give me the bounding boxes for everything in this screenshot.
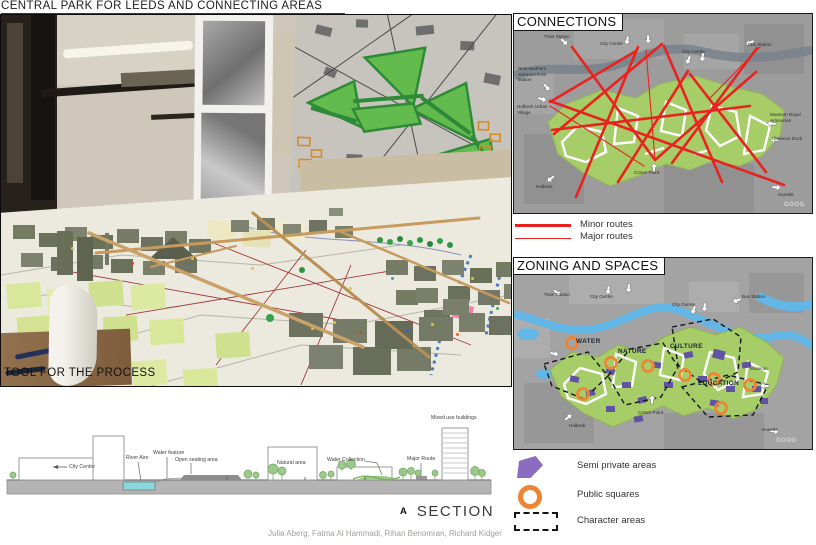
sec-label-city-centre: City Centre (69, 464, 95, 470)
zone-label-culture: CULTURE (670, 343, 703, 350)
zone-label-water: WATER (576, 338, 601, 345)
zone-label-nature: NATURE (618, 348, 647, 355)
zon-label-city-centre-1: City Centre (590, 294, 613, 300)
character-areas-label: Character areas (577, 515, 645, 526)
conn-label-city-centre-2: City Centre (682, 49, 705, 55)
public-squares-swatch (518, 485, 542, 509)
conn-label-museum-royal-armouries: Museum Royal Armouries (770, 112, 810, 123)
sec-label-natural-area: Natural area (277, 460, 306, 466)
conn-label-clarence-dock: Clarence Dock (772, 136, 812, 142)
zon-label-train-station: Train Station (544, 292, 570, 298)
zon-label-bus-station: Bus Station (742, 294, 766, 300)
semi-private-swatch (517, 456, 543, 478)
character-areas-swatch (514, 512, 558, 531)
zone-label-education: EDUCATION (698, 380, 739, 387)
credits: Julia Aberg, Fatma Al Hammadi, Rihan Ben… (268, 529, 502, 538)
major-routes-label: Major routes (580, 231, 633, 242)
conn-label-southern-entrance: New southern entrance from station (518, 66, 556, 83)
minor-routes-swatch (515, 224, 571, 227)
zoning-map (514, 258, 812, 449)
sec-label-river-aire: River Aire (126, 455, 149, 461)
conn-label-hunslet: Hunslet (778, 192, 794, 198)
zon-label-holbeck: Holbeck (569, 423, 586, 429)
poster-canvas: CENTRAL PARK FOR LEEDS AND CONNECTING AR… (0, 0, 816, 545)
conn-label-holbeck: Holbeck (536, 184, 553, 190)
process-model-photo: TOOL FOR THE PROCESS (0, 14, 512, 387)
photo-caption: TOOL FOR THE PROCESS (4, 367, 156, 379)
public-squares-label: Public squares (577, 489, 639, 500)
zon-label-museum: Museum (750, 366, 768, 372)
sec-label-water-feature: Water feature (153, 450, 184, 456)
zon-watermark: GOOG (776, 438, 797, 444)
sec-label-water-collection: Water Collection (327, 457, 365, 463)
zon-label-crown-point: Crown Point (638, 410, 663, 416)
conn-label-crown-point: Crown Point (634, 170, 659, 176)
connections-panel: CONNECTIONS Train Station City Centre Ci… (513, 13, 813, 214)
connections-title: CONNECTIONS (514, 14, 623, 31)
zon-label-hunslet: Hunslet (762, 427, 778, 433)
conn-label-holbeck-urban-village: Holbeck Urban Village (517, 104, 557, 115)
conn-label-train-station: Train Station (544, 34, 570, 40)
zoning-title: ZONING AND SPACES (514, 258, 665, 275)
sec-label-open-seating: Open seating area (175, 457, 218, 463)
zoning-panel: ZONING AND SPACES Train Station City Cen… (513, 257, 813, 450)
sec-label-major-route: Major Route (407, 456, 435, 462)
conn-watermark: GOOG (784, 202, 805, 208)
section-marker: A (400, 506, 407, 517)
zon-label-city-centre-2: City Centre (672, 302, 695, 308)
semi-private-label: Semi private areas (577, 460, 656, 471)
sec-label-mixed-use: Mixed use buildings (431, 415, 477, 421)
section-caption: ASECTION (400, 503, 494, 521)
section-title: SECTION (417, 503, 494, 520)
section-drawing: City Centre River Aire Water feature Ope… (5, 405, 495, 505)
section-linework (5, 405, 495, 505)
conn-label-bus-station: Bus Station (748, 42, 772, 48)
conn-label-city-centre-1: City Centre (600, 41, 623, 47)
major-routes-swatch (515, 238, 571, 239)
minor-routes-label: Minor routes (580, 219, 633, 230)
page-title: CENTRAL PARK FOR LEEDS AND CONNECTING AR… (1, 0, 345, 14)
